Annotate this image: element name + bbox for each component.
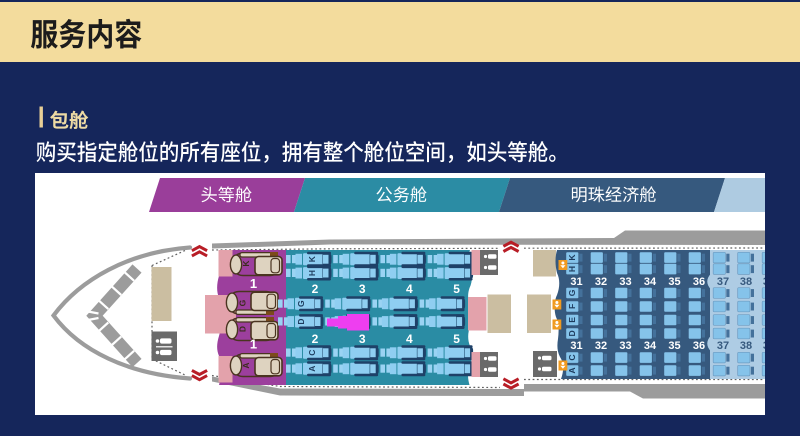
svg-text:G: G [567, 289, 577, 296]
svg-text:38: 38 [740, 276, 752, 288]
svg-text:F: F [567, 304, 577, 309]
svg-text:5: 5 [453, 282, 460, 296]
svg-text:35: 35 [668, 340, 680, 352]
svg-text:33: 33 [619, 276, 631, 288]
svg-text:H: H [567, 266, 577, 272]
svg-text:G: G [238, 299, 248, 306]
svg-text:37: 37 [717, 276, 729, 288]
svg-text:4: 4 [406, 282, 413, 296]
svg-text:3: 3 [359, 282, 366, 296]
svg-text:31: 31 [570, 276, 582, 288]
svg-text:34: 34 [644, 340, 657, 352]
svg-text:1: 1 [250, 276, 257, 291]
svg-text:K: K [241, 260, 251, 267]
svg-text:4: 4 [406, 332, 413, 346]
svg-text:K: K [567, 254, 577, 261]
svg-text:2: 2 [312, 332, 319, 346]
svg-text:A: A [307, 366, 317, 372]
svg-text:G: G [296, 300, 306, 307]
svg-text:C: C [307, 350, 317, 356]
svg-text:D: D [238, 326, 248, 332]
svg-text:34: 34 [644, 276, 657, 288]
svg-text:5: 5 [453, 332, 460, 346]
svg-text:D: D [567, 330, 577, 336]
svg-text:35: 35 [668, 276, 680, 288]
svg-text:3: 3 [359, 332, 366, 346]
svg-text:D: D [296, 318, 306, 324]
svg-text:H: H [307, 270, 317, 276]
svg-text:31: 31 [570, 340, 582, 352]
svg-text:32: 32 [595, 340, 607, 352]
svg-text:38: 38 [740, 340, 752, 352]
svg-text:32: 32 [595, 276, 607, 288]
svg-text:1: 1 [250, 337, 257, 352]
svg-text:K: K [307, 255, 317, 262]
svg-text:36: 36 [693, 276, 705, 288]
svg-text:37: 37 [717, 340, 729, 352]
svg-text:A: A [567, 367, 577, 373]
svg-text:C: C [567, 354, 577, 360]
svg-text:33: 33 [619, 340, 631, 352]
svg-text:2: 2 [312, 282, 319, 296]
svg-text:E: E [567, 317, 577, 323]
svg-text:36: 36 [693, 340, 705, 352]
svg-text:A: A [241, 362, 251, 368]
